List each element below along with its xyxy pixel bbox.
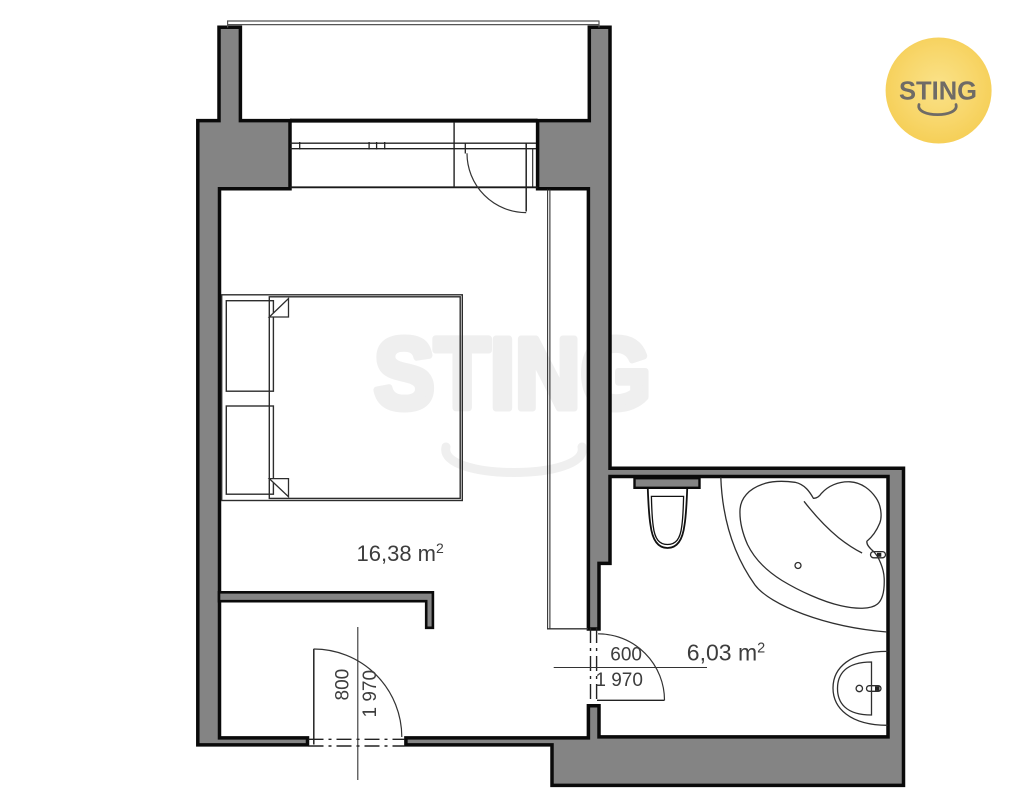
svg-text:6,03 m2: 6,03 m2: [687, 639, 765, 665]
svg-text:16,38 m2: 16,38 m2: [357, 540, 445, 566]
svg-text:800: 800: [333, 669, 354, 701]
svg-text:600: 600: [610, 645, 642, 666]
svg-text:STING: STING: [899, 76, 977, 106]
svg-text:1 970: 1 970: [595, 670, 643, 691]
svg-text:1 970: 1 970: [360, 670, 381, 718]
